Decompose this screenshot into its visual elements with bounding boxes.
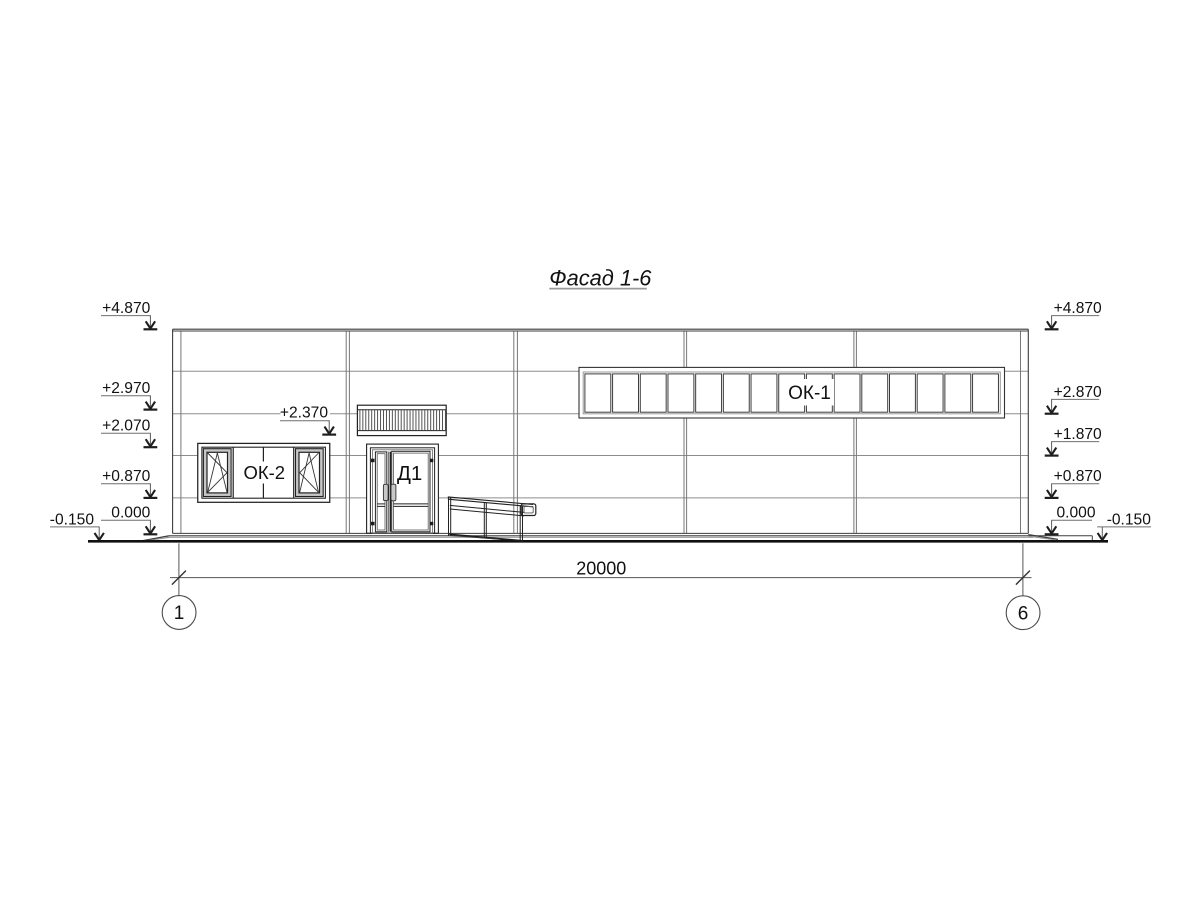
svg-text:Д1: Д1: [397, 462, 422, 485]
svg-text:+4.870: +4.870: [1054, 300, 1102, 317]
svg-text:1: 1: [174, 603, 185, 624]
svg-text:ОК-1: ОК-1: [788, 383, 831, 404]
svg-text:+2.970: +2.970: [102, 380, 150, 397]
svg-text:-0.150: -0.150: [1107, 511, 1152, 528]
svg-text:+2.370: +2.370: [280, 404, 328, 421]
svg-text:0.000: 0.000: [111, 505, 150, 522]
svg-text:6: 6: [1018, 603, 1029, 624]
svg-text:ОК-2: ОК-2: [243, 462, 285, 483]
svg-text:0.000: 0.000: [1057, 505, 1096, 522]
svg-text:+2.070: +2.070: [102, 418, 150, 435]
svg-text:Фасад 1-6: Фасад 1-6: [549, 265, 652, 290]
svg-text:-0.150: -0.150: [50, 511, 95, 528]
svg-text:+1.870: +1.870: [1054, 426, 1102, 443]
svg-text:+0.870: +0.870: [102, 468, 150, 485]
svg-text:20000: 20000: [576, 559, 626, 579]
svg-text:+4.870: +4.870: [102, 300, 150, 317]
svg-text:+2.870: +2.870: [1054, 384, 1102, 401]
svg-text:+0.870: +0.870: [1054, 468, 1102, 485]
